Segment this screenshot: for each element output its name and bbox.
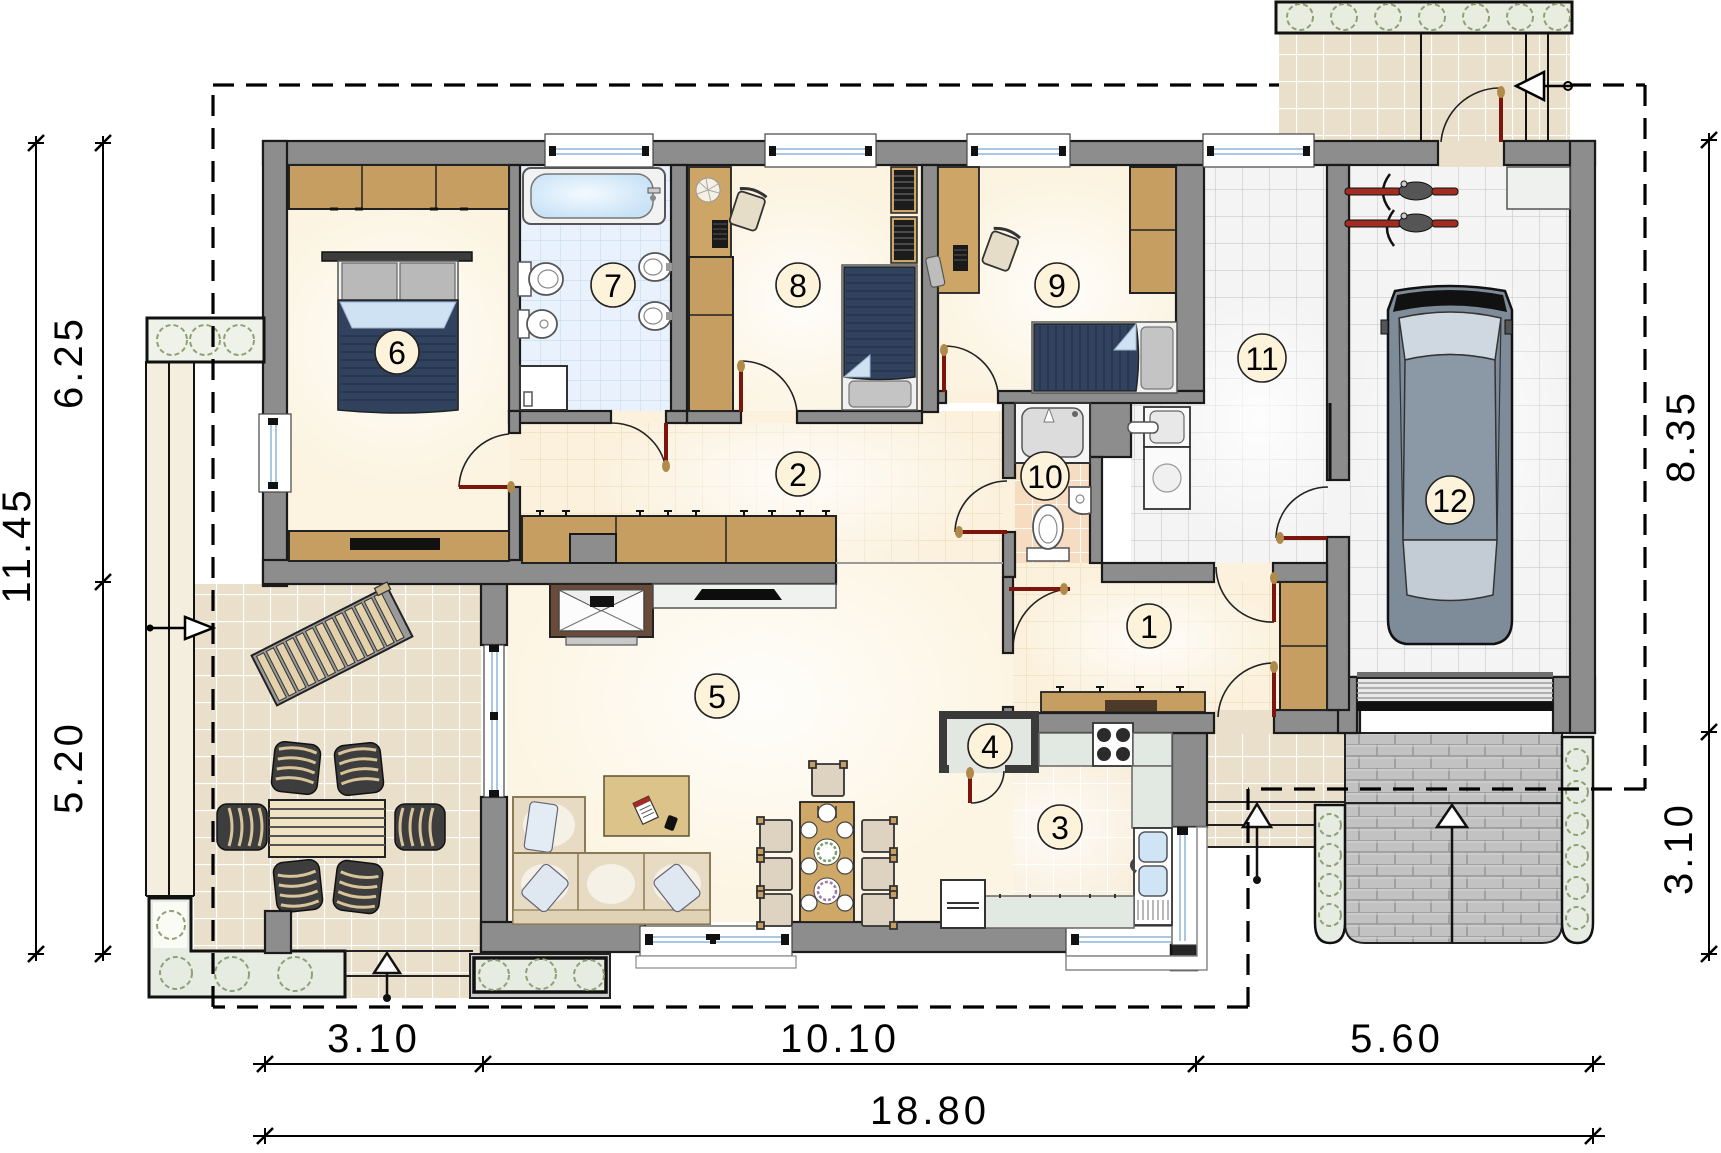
- svg-text:1: 1: [1140, 609, 1158, 645]
- svg-text:8.35: 8.35: [1659, 389, 1703, 483]
- svg-text:10.10: 10.10: [780, 1017, 900, 1061]
- svg-text:2: 2: [789, 457, 807, 493]
- svg-text:18.80: 18.80: [870, 1089, 990, 1133]
- svg-text:5.20: 5.20: [47, 720, 91, 814]
- svg-text:6: 6: [388, 335, 406, 371]
- svg-text:5: 5: [708, 679, 726, 715]
- svg-text:11: 11: [1245, 341, 1278, 377]
- svg-text:3.10: 3.10: [327, 1017, 421, 1061]
- svg-text:5.60: 5.60: [1350, 1017, 1444, 1061]
- svg-text:3.10: 3.10: [1657, 801, 1701, 895]
- svg-text:12: 12: [1432, 483, 1468, 519]
- svg-text:8: 8: [789, 268, 807, 304]
- svg-text:6.25: 6.25: [47, 315, 91, 409]
- svg-text:4: 4: [981, 729, 999, 765]
- svg-text:11.45: 11.45: [0, 486, 39, 603]
- svg-text:7: 7: [604, 268, 622, 304]
- svg-text:10: 10: [1027, 459, 1063, 495]
- svg-text:3: 3: [1051, 810, 1069, 846]
- svg-text:9: 9: [1048, 268, 1066, 304]
